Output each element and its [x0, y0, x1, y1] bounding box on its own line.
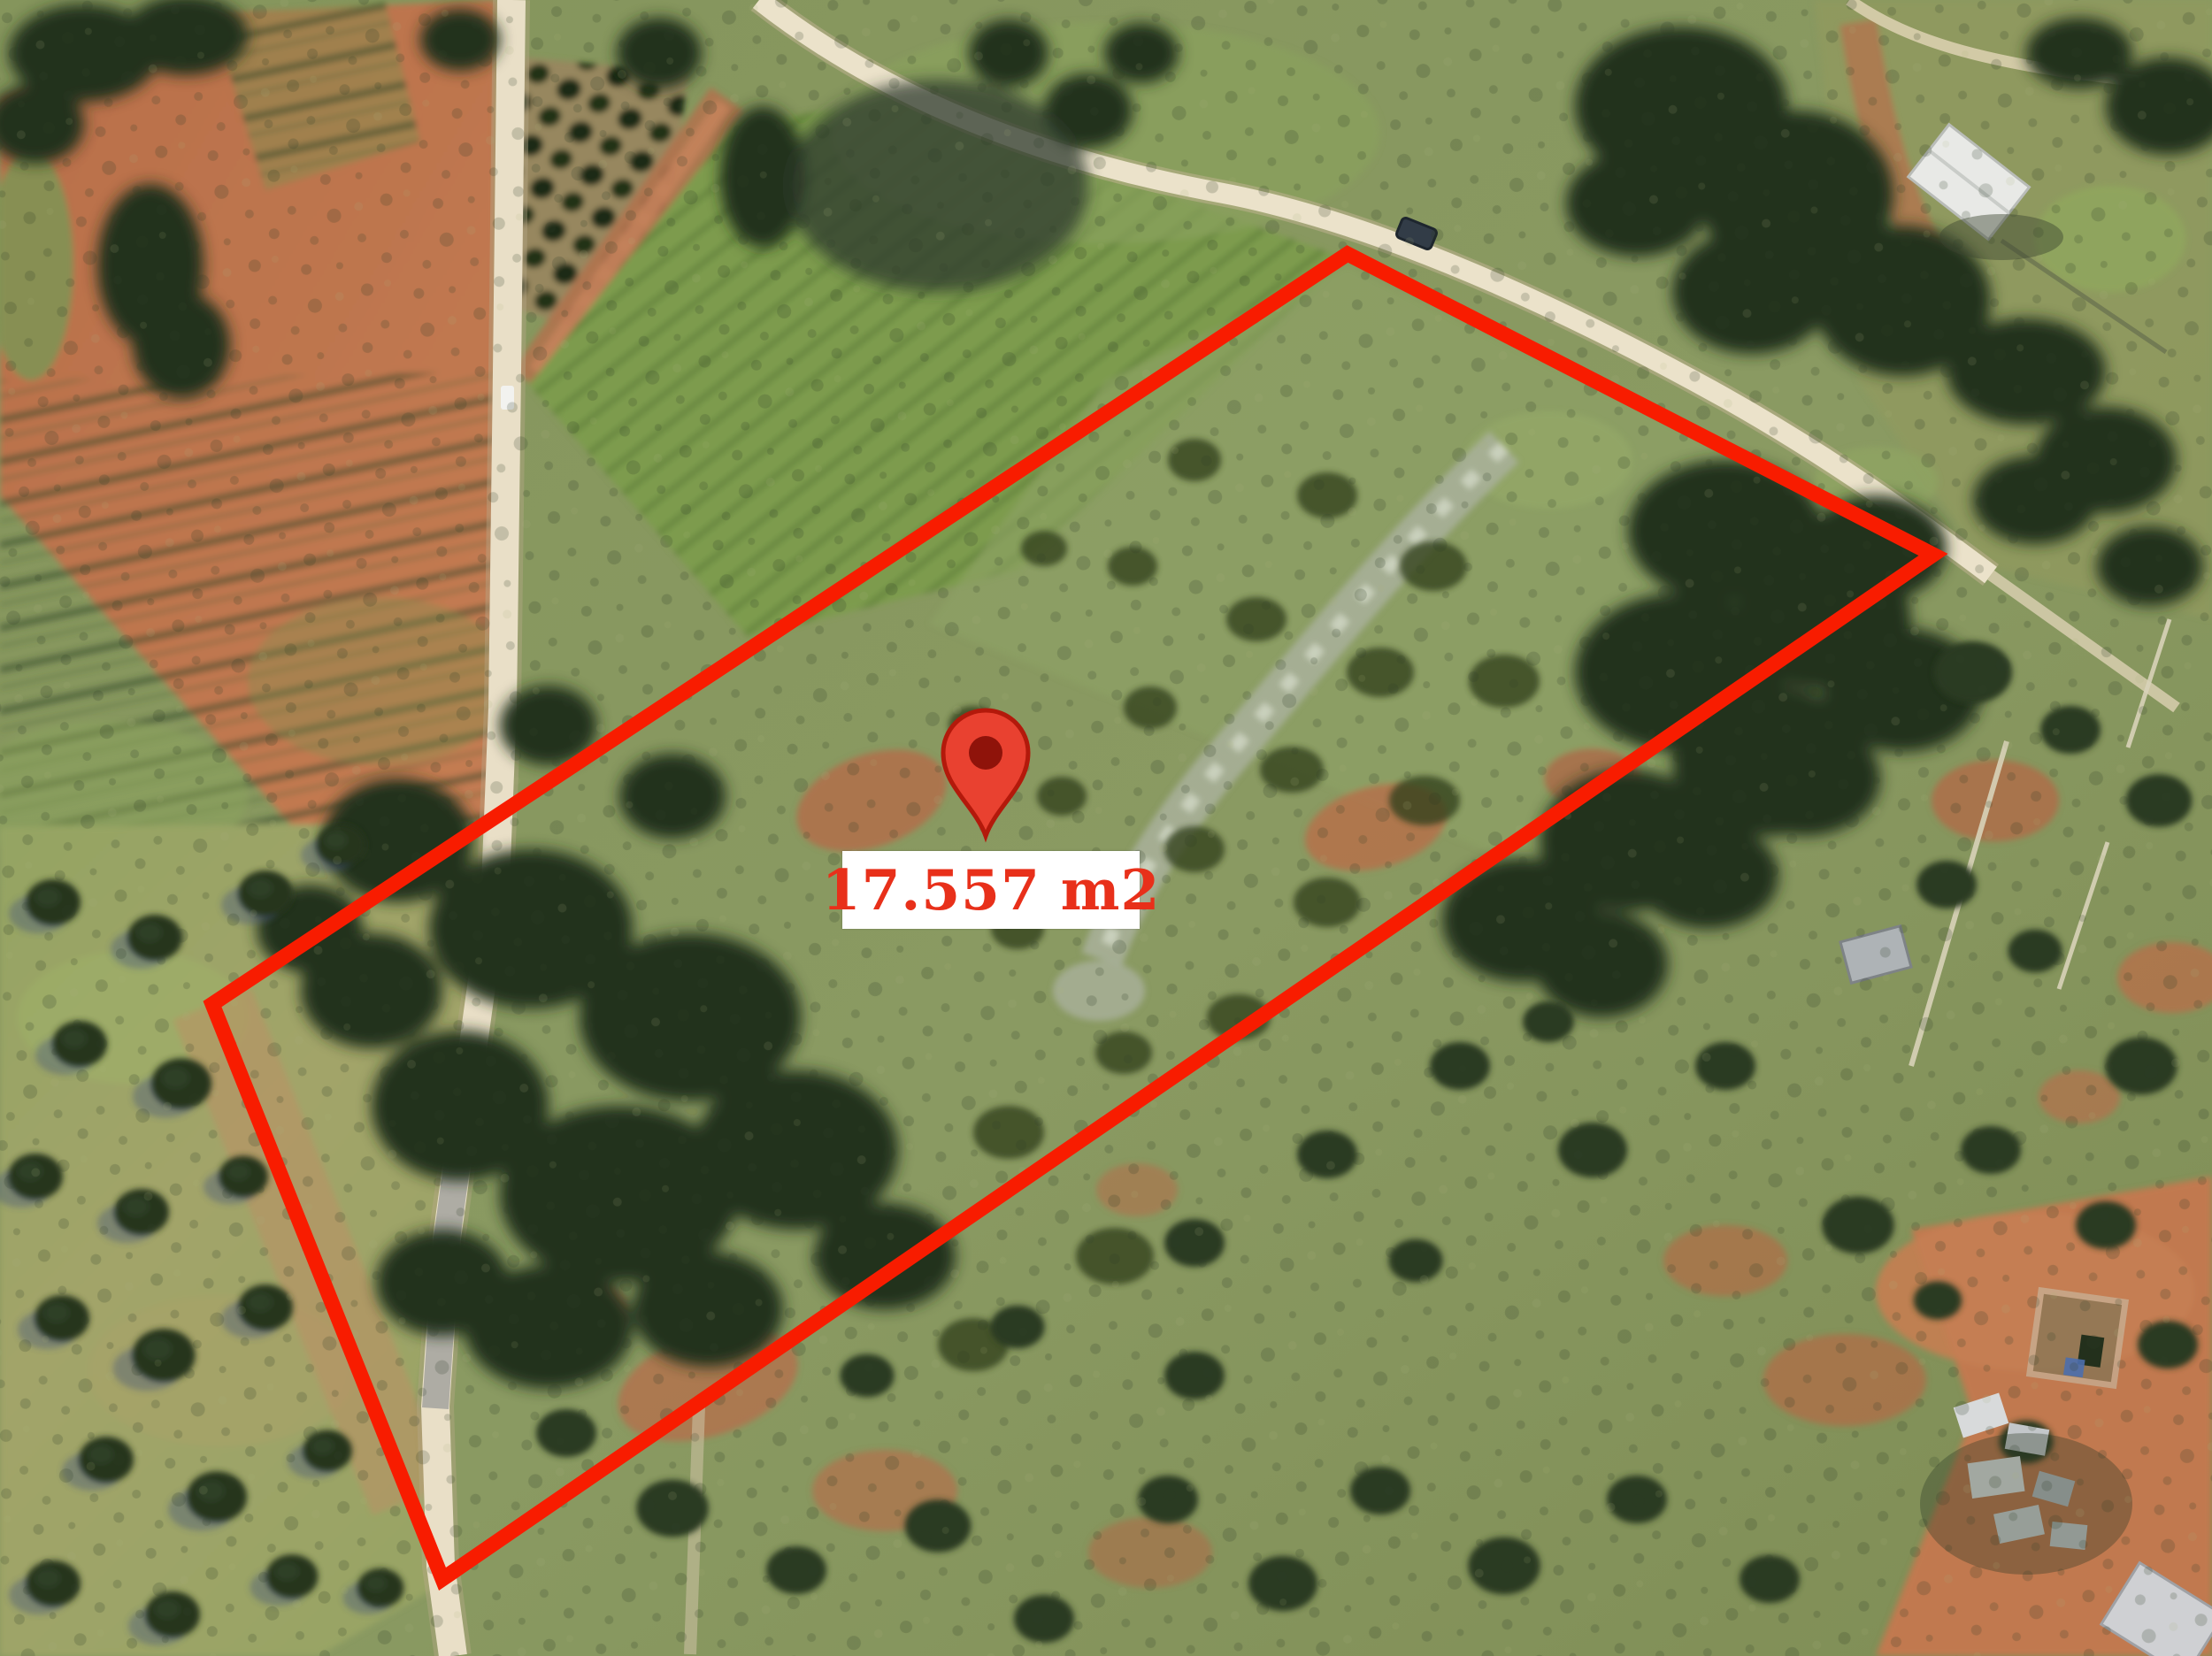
- pin-dot-icon: [969, 736, 1002, 770]
- texture-overlay: [0, 0, 2212, 1656]
- map-viewport: 17.557 m2: [0, 0, 2212, 1656]
- area-measurement-label: 17.557 m2: [842, 851, 1140, 929]
- satellite-imagery: [0, 0, 2212, 1656]
- area-value-text: 17.557 m2: [822, 857, 1161, 923]
